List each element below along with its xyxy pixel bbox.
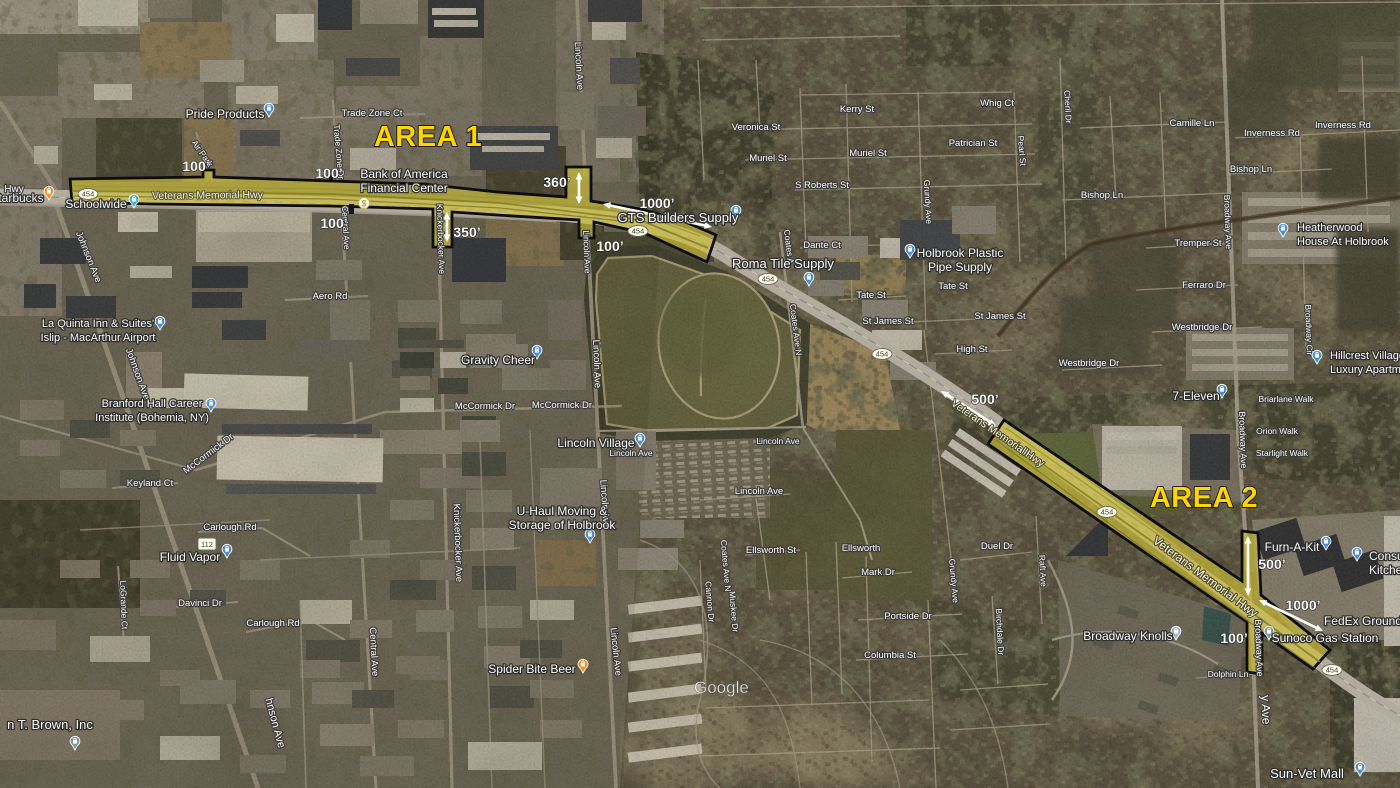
svg-text:Muriel St: Muriel St xyxy=(849,148,887,159)
svg-text:Duel Dr: Duel Dr xyxy=(981,541,1013,552)
svg-text:Consum: Consum xyxy=(1369,549,1400,563)
svg-text:Bishop Ln: Bishop Ln xyxy=(1230,164,1272,175)
svg-text:Holbrook Plastic: Holbrook Plastic xyxy=(917,246,1004,260)
svg-text:Bishop Ln: Bishop Ln xyxy=(1081,190,1123,201)
svg-text:Raft Ave: Raft Ave xyxy=(1037,555,1049,588)
svg-text:1000’: 1000’ xyxy=(639,195,674,211)
svg-text:Columbia St: Columbia St xyxy=(864,650,916,661)
svg-text:Spider Bite Beer: Spider Bite Beer xyxy=(488,662,575,676)
svg-text:1000’: 1000’ xyxy=(1285,597,1320,613)
svg-text:Financial Center: Financial Center xyxy=(360,181,447,195)
svg-text:Broadway Knolls: Broadway Knolls xyxy=(1083,629,1172,643)
svg-text:Aero Rd: Aero Rd xyxy=(313,291,348,302)
svg-text:Westbridge Dr: Westbridge Dr xyxy=(1059,358,1120,369)
svg-text:Tate St: Tate St xyxy=(938,281,968,292)
svg-text:St James St: St James St xyxy=(974,311,1026,322)
svg-text:Roma Tile Supply: Roma Tile Supply xyxy=(732,256,834,271)
svg-text:Ferraro Dr: Ferraro Dr xyxy=(1182,280,1226,291)
svg-text:Hillcrest Village: Hillcrest Village xyxy=(1330,350,1400,362)
svg-text:Dante Ct: Dante Ct xyxy=(803,240,841,251)
svg-text:100’: 100’ xyxy=(320,215,347,231)
svg-text:Kitchen: Kitchen xyxy=(1369,563,1400,577)
svg-text:454: 454 xyxy=(82,190,95,199)
svg-text:Broadway Cir: Broadway Cir xyxy=(1303,304,1315,356)
svg-text:Tate St: Tate St xyxy=(856,290,886,301)
svg-text:GTS Builders Supply: GTS Builders Supply xyxy=(618,210,739,225)
svg-text:Branford Hall Career: Branford Hall Career xyxy=(102,398,203,410)
svg-text:Institute (Bohemia, NY): Institute (Bohemia, NY) xyxy=(95,412,209,424)
svg-text:Carlough Rd: Carlough Rd xyxy=(246,618,299,629)
svg-text:La Quinta Inn & Suites': La Quinta Inn & Suites' xyxy=(42,318,154,330)
svg-text:Dolphin Ln: Dolphin Ln xyxy=(1208,669,1249,679)
svg-text:Mark Dr: Mark Dr xyxy=(861,567,895,578)
svg-text:Briarlane Walk: Briarlane Walk xyxy=(1259,394,1315,404)
svg-text:100’: 100’ xyxy=(315,165,342,181)
svg-text:Orion Walk: Orion Walk xyxy=(1256,426,1298,436)
svg-text:500’: 500’ xyxy=(1258,556,1285,572)
svg-text:Fluid Vapor: Fluid Vapor xyxy=(160,550,220,564)
svg-text:350’: 350’ xyxy=(453,224,480,240)
svg-text:Kerry St: Kerry St xyxy=(840,104,875,115)
svg-text:House At Holbrook: House At Holbrook xyxy=(1297,236,1389,248)
svg-text:Islip - MacArthur Airport: Islip - MacArthur Airport xyxy=(41,332,156,344)
svg-text:n T. Brown, Inc: n T. Brown, Inc xyxy=(7,717,93,732)
svg-text:Bank of America: Bank of America xyxy=(360,167,448,181)
svg-text:AREA 1: AREA 1 xyxy=(374,121,482,153)
svg-text:Furn-A-Kit: Furn-A-Kit xyxy=(1265,540,1320,554)
svg-text:Schoolwide: Schoolwide xyxy=(65,197,127,211)
svg-text:Heatherwood: Heatherwood xyxy=(1297,222,1362,234)
svg-text:FedEx Ground: FedEx Ground xyxy=(1324,614,1400,628)
svg-text:112: 112 xyxy=(201,540,213,549)
svg-text:y Ave: y Ave xyxy=(1258,695,1273,725)
svg-text:Sunoco Gas Station: Sunoco Gas Station xyxy=(1272,631,1379,645)
svg-text:Gravity Cheer: Gravity Cheer xyxy=(461,353,535,367)
svg-text:Lincoln Village: Lincoln Village xyxy=(557,436,634,450)
svg-text:Pipe Supply: Pipe Supply xyxy=(928,260,992,274)
svg-text:100’: 100’ xyxy=(1220,630,1247,646)
svg-text:454: 454 xyxy=(632,227,645,236)
svg-text:Patrician St: Patrician St xyxy=(949,138,998,149)
svg-text:Muriel St: Muriel St xyxy=(749,153,787,164)
svg-text:tarbucks: tarbucks xyxy=(0,191,44,205)
svg-text:Portside Dr: Portside Dr xyxy=(884,611,932,622)
svg-text:Lincoln Ave: Lincoln Ave xyxy=(735,486,783,497)
svg-text:Veronica St: Veronica St xyxy=(732,122,781,133)
svg-text:Westbridge Dr: Westbridge Dr xyxy=(1172,322,1233,333)
svg-text:Google: Google xyxy=(694,678,749,697)
svg-text:St James St: St James St xyxy=(862,316,914,327)
svg-text:Broadway Ave: Broadway Ave xyxy=(1237,411,1249,469)
svg-text:Tremper St: Tremper St xyxy=(1174,238,1222,249)
svg-text:454: 454 xyxy=(876,350,889,359)
svg-text:454: 454 xyxy=(1326,666,1339,675)
svg-text:Storage of Holbrook: Storage of Holbrook xyxy=(509,518,617,532)
svg-text:U-Haul Moving &: U-Haul Moving & xyxy=(517,504,608,518)
svg-text:Veterans Memorial Hwy: Veterans Memorial Hwy xyxy=(152,189,264,202)
svg-text:S Roberts St: S Roberts St xyxy=(795,180,849,191)
svg-text:McCormick Dr: McCormick Dr xyxy=(455,401,515,412)
svg-text:Lincoln Ave: Lincoln Ave xyxy=(590,340,603,389)
svg-text:Inverness Rd: Inverness Rd xyxy=(1244,128,1300,139)
svg-text:Broadway Ave: Broadway Ave xyxy=(1222,195,1234,250)
svg-text:Starlight Walk: Starlight Walk xyxy=(1256,448,1309,458)
svg-text:Inverness Rd: Inverness Rd xyxy=(1315,120,1371,131)
svg-text:Ellsworth: Ellsworth xyxy=(842,543,881,554)
svg-text:Pride Products: Pride Products xyxy=(186,107,265,121)
svg-text:$: $ xyxy=(361,199,366,209)
svg-text:McCormick Dr: McCormick Dr xyxy=(532,400,592,411)
svg-text:Cheril Dr: Cheril Dr xyxy=(1062,90,1074,124)
svg-text:Carlough Rd: Carlough Rd xyxy=(203,522,256,533)
svg-text:Whig Ct: Whig Ct xyxy=(980,98,1014,109)
svg-text:Sun-Vet Mall: Sun-Vet Mall xyxy=(1270,766,1344,781)
svg-text:360’: 360’ xyxy=(543,174,570,190)
svg-text:AREA 2: AREA 2 xyxy=(1150,482,1258,514)
svg-text:Trade Zone Ct: Trade Zone Ct xyxy=(342,108,403,119)
svg-text:100’: 100’ xyxy=(182,158,209,174)
svg-text:Luxury Apartme: Luxury Apartme xyxy=(1330,364,1400,376)
svg-text:Davinci Dr: Davinci Dr xyxy=(178,598,222,609)
svg-text:454: 454 xyxy=(762,275,775,284)
svg-text:454: 454 xyxy=(1101,508,1114,517)
svg-text:Keyland Ct: Keyland Ct xyxy=(127,478,174,489)
svg-text:Lincoln Ave: Lincoln Ave xyxy=(756,436,800,446)
svg-text:500’: 500’ xyxy=(971,391,998,407)
svg-text:Lincoln Ave: Lincoln Ave xyxy=(581,230,593,274)
svg-text:Ellsworth St: Ellsworth St xyxy=(746,545,797,556)
svg-text:100’: 100’ xyxy=(596,238,623,254)
svg-text:7-Eleven: 7-Eleven xyxy=(1172,389,1219,403)
svg-text:LoGrande Ct: LoGrande Ct xyxy=(118,580,130,630)
svg-text:Camille Ln: Camille Ln xyxy=(1170,118,1215,129)
svg-text:Broadway Ave: Broadway Ave xyxy=(1253,619,1265,677)
svg-text:High St: High St xyxy=(956,344,988,355)
